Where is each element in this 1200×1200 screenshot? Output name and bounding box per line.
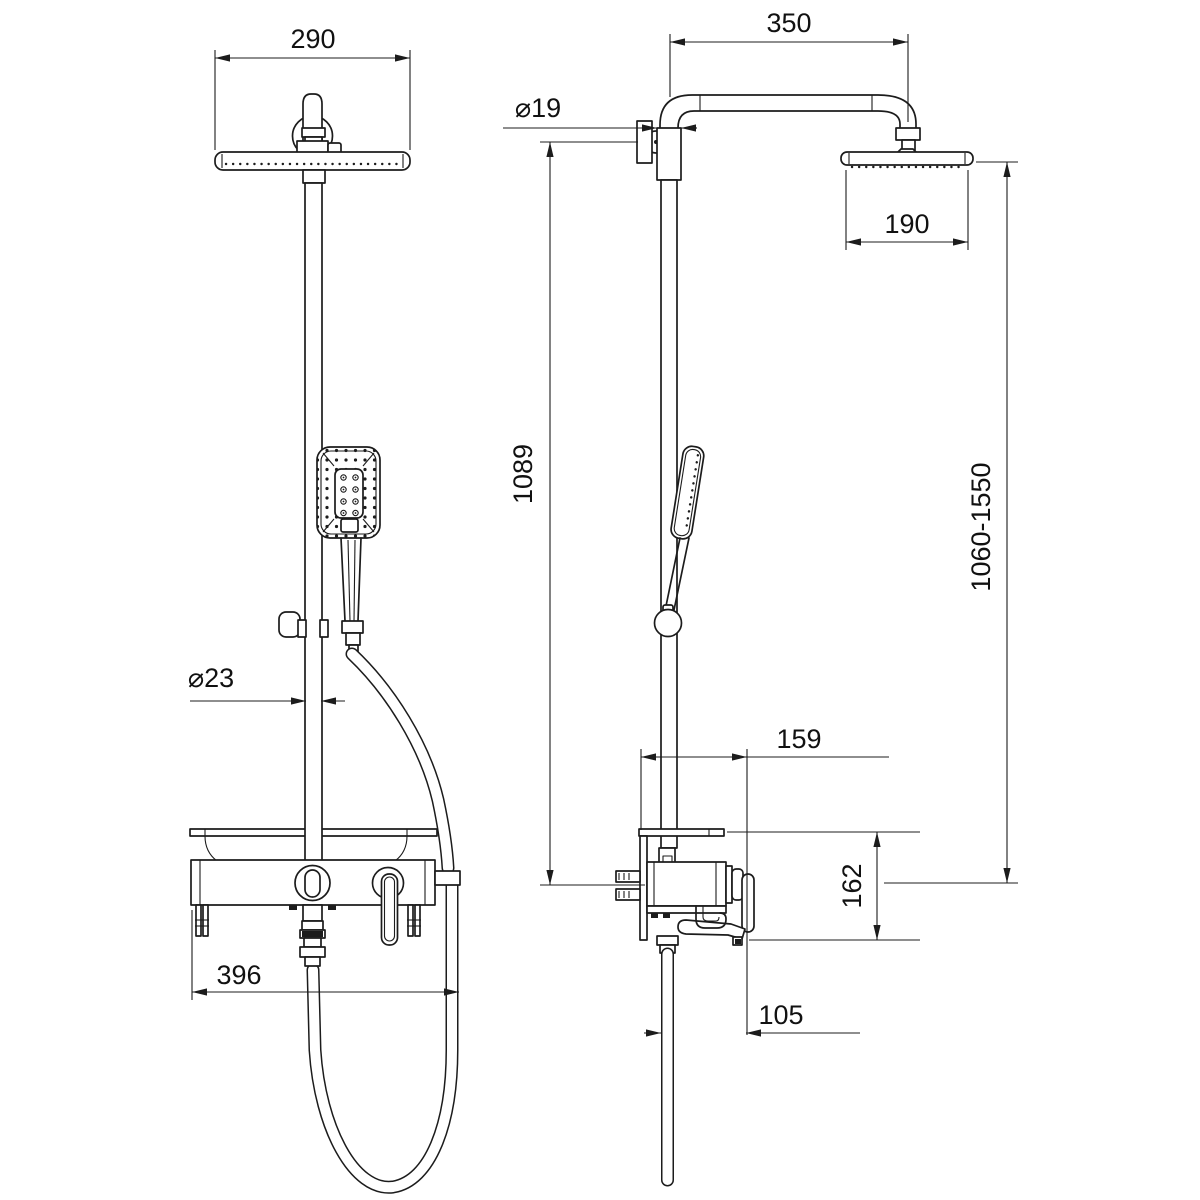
dim-label-overall-height-range: 1060-1550 [966,462,996,591]
dim-label-spout-offset: 105 [758,1000,803,1030]
side-shower-head [841,128,973,167]
drawing-canvas: 290 ⌀23 396 [0,0,1200,1200]
dim-mixer-height: 162 [727,832,920,940]
hose-coupling [435,871,460,885]
side-wall-bracket [637,121,681,180]
dim-label-mixer-width: 396 [216,960,261,990]
dim-overall-height-range: 1060-1550 [884,162,1018,883]
dim-label-column-pipe-diameter: ⌀23 [188,663,234,693]
side-mixer-lever [742,874,754,932]
dim-label-head-width: 290 [290,24,335,54]
dim-label-mixer-height: 162 [837,863,867,908]
dim-label-arm-reach: 350 [766,8,811,38]
mixer-lever [382,874,398,945]
slider-knob [655,610,682,637]
front-view: 290 ⌀23 396 [188,24,460,1187]
dim-label-head-diameter: 190 [884,209,929,239]
dim-label-bracket-to-mixer-height: 1089 [508,444,538,504]
dim-label-shelf-depth: 159 [776,724,821,754]
dim-spout-offset: 105 [644,1000,860,1033]
side-view: 350 ⌀19 190 1089 1060-1550 [503,8,1018,1180]
dim-bracket-to-mixer-height: 1089 [508,142,645,885]
front-shower-head [215,94,410,183]
dim-head-diameter: 190 [846,170,968,250]
dim-wall-pipe-diameter: ⌀19 [503,93,697,128]
dim-label-wall-pipe-diameter: ⌀19 [515,93,561,123]
side-mixer-body [616,829,754,953]
technical-drawing-shower-system: 290 ⌀23 396 [0,0,1200,1200]
front-spout-outlet [300,905,325,966]
